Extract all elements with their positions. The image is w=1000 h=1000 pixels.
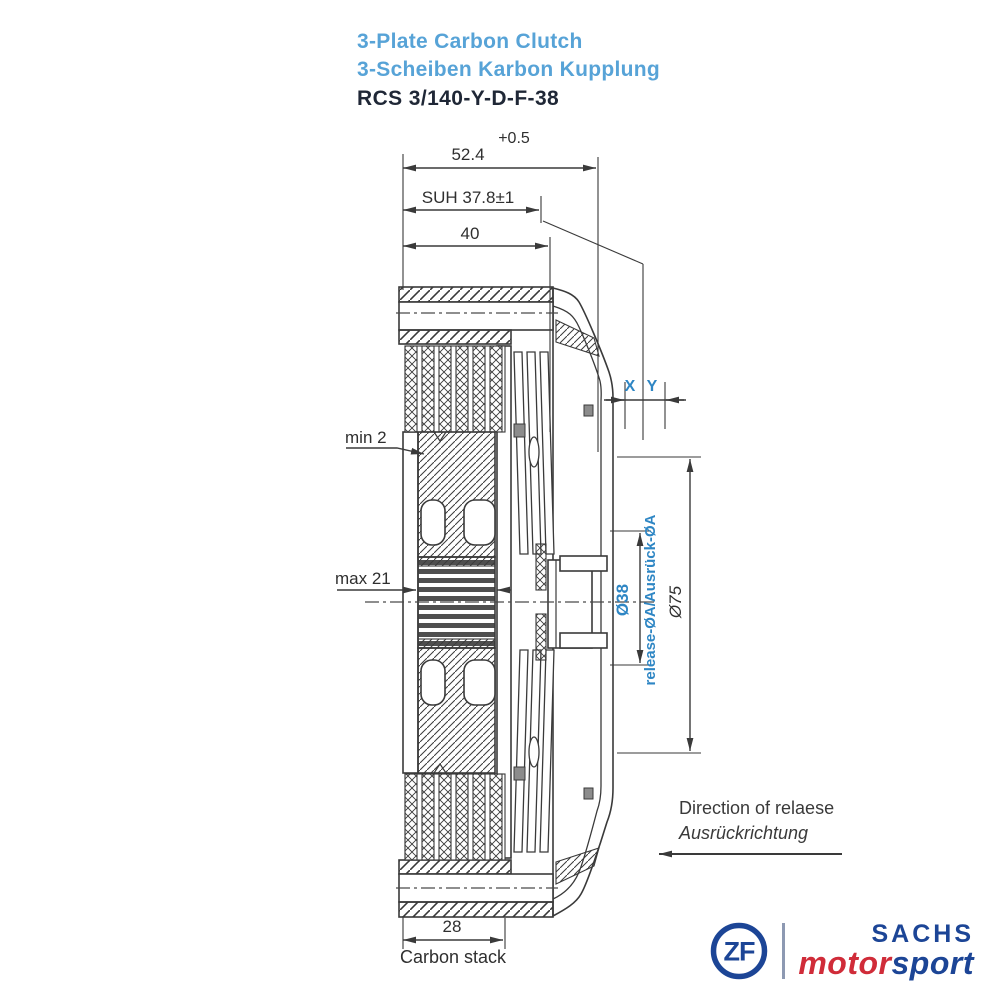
ring-top-hatch-inner	[399, 330, 511, 344]
dim-tolerance: +0.5	[498, 130, 530, 147]
hub-plate-bottom	[418, 648, 495, 773]
sachs-wordmark: SACHS	[871, 922, 974, 947]
dim-outer-dia: Ø75	[666, 585, 685, 619]
ring-top-band	[399, 302, 553, 330]
dim-max-wear: max 21	[335, 569, 391, 588]
motorsport-wordmark: motorsport	[798, 947, 974, 980]
release-direction-en: Direction of relaese	[679, 798, 834, 819]
zf-logo-text: ZF	[724, 937, 755, 967]
dim-min-wear: min 2	[345, 428, 387, 447]
dim-x: X	[625, 378, 636, 395]
label-carbon-stack: Carbon stack	[400, 947, 507, 967]
release-direction-de: Ausrückrichtung	[679, 823, 834, 844]
dim-release-dia: Ø38	[613, 584, 632, 616]
logo-wordmark: SACHS motorsport	[798, 922, 974, 980]
ring-bottom-hatch-outer	[399, 902, 553, 917]
ring-top-hatch-outer	[399, 287, 553, 302]
motorsport-red-part: motor	[798, 945, 891, 981]
dim-suh: SUH 37.8±1	[422, 188, 515, 207]
dim-release-label: release-ØA/Ausrück-ØA	[642, 514, 659, 685]
dim-stack-width: 28	[443, 917, 462, 936]
dim-y: Y	[647, 378, 658, 395]
carbon-stack-top	[405, 346, 505, 432]
logo-divider	[782, 923, 785, 979]
zf-logo-icon: ZF	[709, 921, 769, 981]
release-direction-note: Direction of relaese Ausrückrichtung	[679, 798, 834, 844]
motorsport-blue-part: sport	[892, 945, 975, 981]
section-geometry	[399, 287, 613, 917]
carbon-stack-bottom	[405, 774, 505, 860]
ring-bottom-hatch-inner	[399, 860, 511, 874]
clutch-cross-section-drawing: +0.5 52.4 SUH 37.8±1 40 min 2 max 21 X Y…	[0, 0, 1000, 1000]
dim-cover-width: 40	[461, 224, 480, 243]
brand-logo: ZF SACHS motorsport	[709, 921, 974, 981]
hub-plate-top	[418, 432, 495, 557]
dim-overall-width: 52.4	[451, 145, 484, 164]
